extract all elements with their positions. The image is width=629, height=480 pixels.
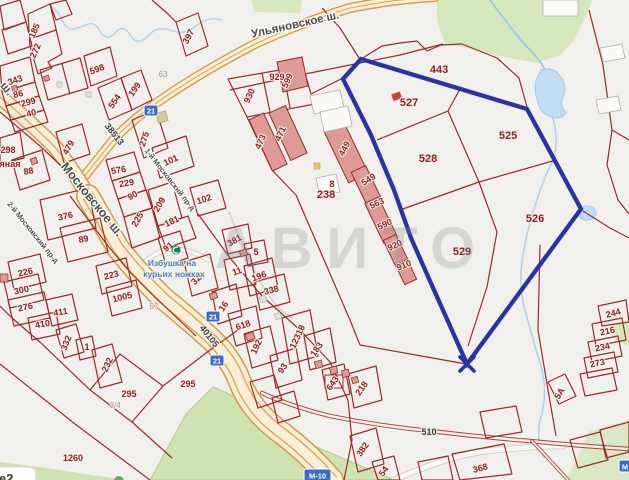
svg-text:526: 526 (526, 213, 544, 225)
svg-text:443: 443 (430, 64, 448, 76)
svg-text:510: 510 (421, 427, 436, 437)
svg-text:298: 298 (0, 145, 15, 155)
svg-text:88: 88 (23, 165, 35, 177)
svg-text:курьих ножках: курьих ножках (143, 269, 205, 279)
svg-text:21: 21 (209, 313, 217, 322)
svg-text:Избушка на: Избушка на (148, 258, 197, 268)
svg-text:М: М (622, 463, 628, 472)
svg-text:АВИТО: АВИТО (215, 216, 490, 281)
svg-text:1: 1 (84, 342, 89, 352)
svg-text:527: 527 (400, 97, 418, 109)
svg-text:де2: де2 (0, 471, 13, 480)
svg-text:89: 89 (78, 233, 90, 245)
svg-text:21: 21 (147, 107, 155, 116)
svg-text:1260: 1260 (63, 453, 83, 463)
svg-text:238: 238 (317, 189, 335, 201)
svg-text:3/4: 3/4 (109, 401, 121, 410)
svg-text:яная: яная (0, 159, 20, 169)
svg-text:525: 525 (499, 130, 517, 142)
svg-text:528: 528 (419, 153, 437, 165)
svg-text:М-10: М-10 (309, 472, 326, 480)
svg-text:295: 295 (121, 389, 136, 399)
svg-text:21: 21 (213, 357, 221, 366)
svg-text:63: 63 (159, 70, 168, 79)
svg-text:295: 295 (180, 379, 195, 389)
svg-text:8: 8 (329, 179, 334, 189)
svg-text:57: 57 (150, 302, 159, 311)
